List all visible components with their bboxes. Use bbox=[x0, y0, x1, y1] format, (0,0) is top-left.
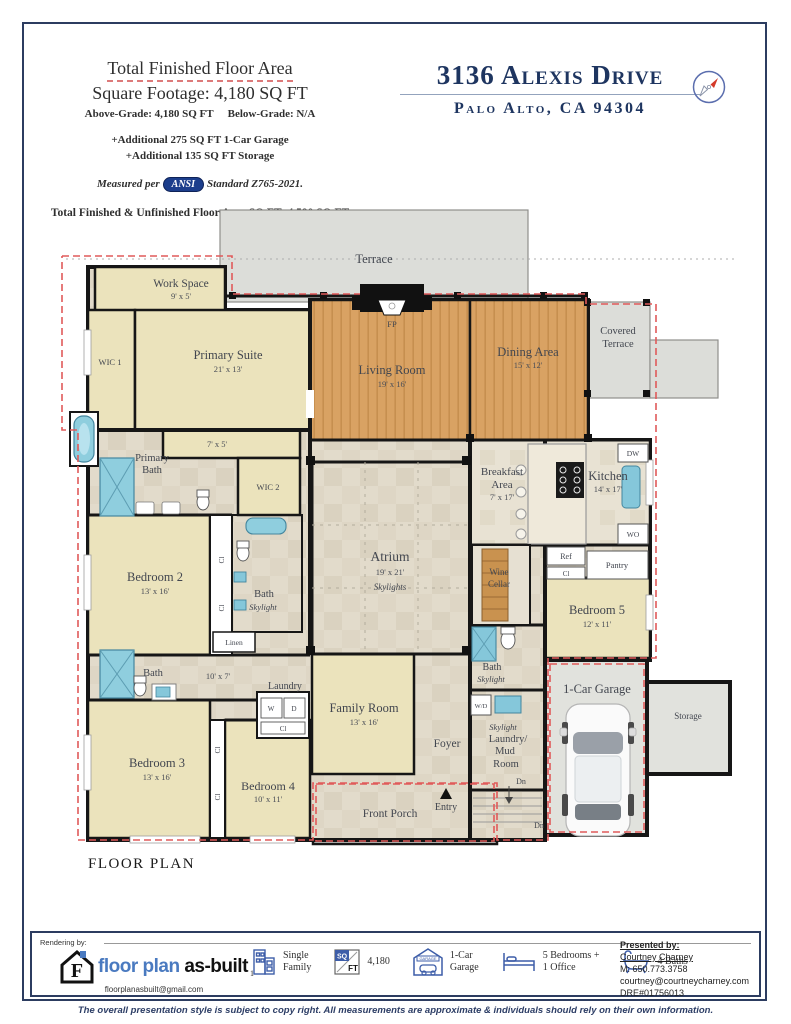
title-divider bbox=[400, 94, 700, 95]
car bbox=[560, 704, 636, 836]
property-city: Palo Alto, CA 94304 bbox=[385, 100, 715, 118]
label-closet-2: Cl bbox=[218, 605, 226, 612]
floor-plan: Terrace Work Space 9' x 5' WIC 1 Primary… bbox=[40, 198, 751, 860]
label-foyer: Foyer bbox=[434, 738, 461, 750]
label-dn-1: Dn bbox=[516, 777, 526, 786]
label-primary-bath-1: Primary bbox=[135, 453, 170, 464]
dim-kitchen: 14' x 17' bbox=[594, 484, 623, 494]
label-kitchen-closet: Cl bbox=[563, 570, 570, 578]
dim-bedroom5: 12' x 11' bbox=[583, 619, 612, 629]
copyright-line: The overall presentation style is subjec… bbox=[0, 1005, 791, 1016]
logo-email: floorplanasbuilt@gmail.com bbox=[60, 985, 248, 994]
label-mud-2: Mud bbox=[495, 746, 516, 757]
label-mud-skylight: Skylight bbox=[489, 722, 517, 732]
label-wall-oven: WO bbox=[627, 530, 640, 539]
dim-bedroom4: 10' x 11' bbox=[254, 794, 283, 804]
grade-below: Below-Grade: N/A bbox=[228, 108, 316, 120]
label-atrium-skylights: Skylights bbox=[374, 582, 407, 592]
brand-blue: floor plan bbox=[98, 956, 180, 977]
label-dryer: D bbox=[291, 705, 296, 713]
dim-family-room: 13' x 16' bbox=[350, 717, 379, 727]
stat-family-prefix: 1 bbox=[250, 969, 254, 978]
sqft-sq: SQ bbox=[337, 954, 348, 961]
footer-box: Rendering by: F floor plan as-built floo… bbox=[30, 931, 761, 997]
logo-monogram: F bbox=[71, 960, 83, 982]
sqft-icon: SQ FT bbox=[333, 948, 361, 976]
label-closet-4: Cl bbox=[214, 794, 222, 801]
label-dining-area: Dining Area bbox=[497, 345, 559, 359]
stat-single-family: 1 Single Family bbox=[247, 946, 311, 978]
agent-email: courtney@courtneycharney.com bbox=[620, 976, 749, 988]
grade-line: Above-Grade: 4,180 SQ FTBelow-Grade: N/A bbox=[45, 108, 355, 120]
logo-brand: floor plan as-built bbox=[98, 956, 248, 978]
label-primary-suite: Primary Suite bbox=[193, 348, 263, 362]
label-closet-3: Cl bbox=[214, 747, 222, 754]
wood-rooms bbox=[310, 300, 588, 440]
label-bath-right-skylight: Skylight bbox=[477, 674, 505, 684]
label-wine-1: Wine bbox=[489, 567, 508, 577]
dim-primary-suite: 21' x 13' bbox=[214, 364, 243, 374]
label-atrium: Atrium bbox=[371, 549, 410, 564]
label-front-porch: Front Porch bbox=[363, 808, 418, 820]
label-washer-dryer: W/D bbox=[475, 703, 488, 710]
dim-breakfast: 7' x 17' bbox=[490, 492, 515, 502]
agent-name: Courtney Charney bbox=[620, 952, 749, 964]
measured-suffix: Standard Z765-2021. bbox=[207, 178, 303, 190]
property-title-block: 3136 Alexis Drive Palo Alto, CA 94304 bbox=[385, 60, 715, 118]
additional-storage: +Additional 135 SQ FT Storage bbox=[45, 149, 355, 165]
label-bedroom2: Bedroom 2 bbox=[127, 570, 183, 584]
label-pantry: Pantry bbox=[606, 560, 629, 570]
label-closet-1: Cl bbox=[218, 557, 226, 564]
ansi-badge: ANSI bbox=[163, 177, 204, 192]
label-dn-2: Dn bbox=[534, 821, 544, 830]
stat-bedrooms: 5 Bedrooms + 1 Office bbox=[501, 949, 600, 975]
rendering-by-label: Rendering by: bbox=[40, 938, 87, 947]
stat-family-line1: Single bbox=[283, 950, 311, 963]
label-breakfast-1: Breakfast bbox=[481, 466, 523, 478]
presented-by-block: Presented by: Courtney Charney M: 650.77… bbox=[620, 940, 749, 999]
label-storage: Storage bbox=[674, 711, 702, 721]
dim-work-space: 9' x 5' bbox=[171, 291, 192, 301]
stat-bedrooms-line1: 5 Bedrooms + bbox=[543, 950, 600, 963]
logo-block: F floor plan as-built floorplanasbuilt@g… bbox=[60, 950, 248, 994]
label-garage: 1-Car Garage bbox=[563, 682, 631, 696]
label-living-room: Living Room bbox=[358, 363, 425, 377]
agent-phone: M: 650.773.3758 bbox=[620, 964, 749, 976]
compass-icon bbox=[688, 66, 730, 108]
property-address: 3136 Alexis Drive bbox=[385, 60, 715, 91]
label-covered-terrace-2: Terrace bbox=[602, 339, 634, 350]
label-primary-bath-2: Bath bbox=[142, 465, 163, 476]
bed-icon bbox=[501, 949, 537, 975]
stat-family-line2: Family bbox=[283, 962, 311, 975]
label-bedroom5: Bedroom 5 bbox=[569, 603, 625, 617]
label-terrace: Terrace bbox=[355, 252, 393, 266]
area-title: Total Finished Floor Area bbox=[107, 58, 292, 82]
additional-garage: +Additional 275 SQ FT 1-Car Garage bbox=[45, 133, 355, 149]
dim-living-room: 19' x 16' bbox=[378, 379, 407, 389]
stat-sqft: SQ FT 4,180 bbox=[333, 948, 390, 976]
label-refrigerator: Ref bbox=[560, 552, 572, 561]
label-bath-center: Bath bbox=[254, 589, 275, 600]
covered-terrace-area bbox=[588, 302, 718, 398]
additional-areas: +Additional 275 SQ FT 1-Car Garage +Addi… bbox=[45, 133, 355, 165]
stat-garage: GARAGE 1-Car Garage bbox=[412, 947, 479, 977]
dim-hall-7x5: 7' x 5' bbox=[207, 439, 228, 449]
brand-black: as-built bbox=[184, 956, 248, 977]
label-family-room: Family Room bbox=[329, 701, 398, 715]
label-wic1: WIC 1 bbox=[99, 357, 122, 367]
label-entry: Entry bbox=[435, 802, 457, 813]
label-bath-right: Bath bbox=[483, 662, 502, 673]
dim-atrium: 19' x 21' bbox=[376, 567, 405, 577]
label-covered-terrace-1: Covered bbox=[600, 326, 636, 337]
measured-prefix: Measured per bbox=[97, 178, 160, 190]
label-wine-2: Cellar bbox=[488, 579, 510, 589]
garage-icon: GARAGE bbox=[412, 947, 444, 977]
fireplace bbox=[352, 284, 432, 315]
garage-tag: GARAGE bbox=[419, 956, 436, 961]
label-dishwasher: DW bbox=[627, 449, 640, 458]
label-kitchen: Kitchen bbox=[588, 469, 628, 483]
label-mud-1: Laundry/ bbox=[489, 734, 528, 745]
label-wic2: WIC 2 bbox=[257, 482, 280, 492]
area-value: Square Footage: 4,180 SQ FT bbox=[45, 83, 355, 104]
dim-bedroom2: 13' x 16' bbox=[141, 586, 170, 596]
agent-dre: DRE#01756013 bbox=[620, 988, 749, 1000]
label-breakfast-2: Area bbox=[491, 479, 512, 491]
stat-garage-line2: Garage bbox=[450, 962, 479, 975]
label-bath-center-skylight: Skylight bbox=[249, 602, 277, 612]
label-bedroom4: Bedroom 4 bbox=[241, 779, 295, 793]
dim-bedroom3: 13' x 16' bbox=[143, 772, 172, 782]
label-bath-left: Bath bbox=[143, 668, 164, 679]
dim-dining-area: 15' x 12' bbox=[514, 360, 543, 370]
label-fireplace: FP bbox=[387, 319, 397, 329]
logo-house-icon: F bbox=[60, 950, 94, 984]
stat-bedrooms-line2: 1 Office bbox=[543, 962, 600, 975]
label-laundry-closet: Cl bbox=[280, 725, 287, 733]
stat-garage-line1: 1-Car bbox=[450, 950, 479, 963]
dim-hall-10x7: 10' x 7' bbox=[206, 671, 231, 681]
label-linen: Linen bbox=[225, 638, 243, 647]
floor-plan-title: FLOOR PLAN bbox=[88, 856, 195, 873]
label-washer: W bbox=[268, 705, 275, 713]
label-mud-3: Room bbox=[493, 759, 519, 770]
label-work-space: Work Space bbox=[153, 278, 209, 290]
area-stats-block: Total Finished Floor Area Square Footage… bbox=[45, 58, 355, 219]
measured-line: Measured perANSIStandard Z765-2021. bbox=[45, 177, 355, 192]
grade-above: Above-Grade: 4,180 SQ FT bbox=[85, 108, 214, 120]
sqft-ft: FT bbox=[348, 964, 358, 973]
building-icon: 1 bbox=[247, 946, 277, 978]
stat-sqft-value: 4,180 bbox=[367, 956, 390, 969]
presented-heading: Presented by: bbox=[620, 940, 749, 952]
label-laundry: Laundry bbox=[268, 681, 302, 692]
label-bedroom3: Bedroom 3 bbox=[129, 756, 185, 770]
